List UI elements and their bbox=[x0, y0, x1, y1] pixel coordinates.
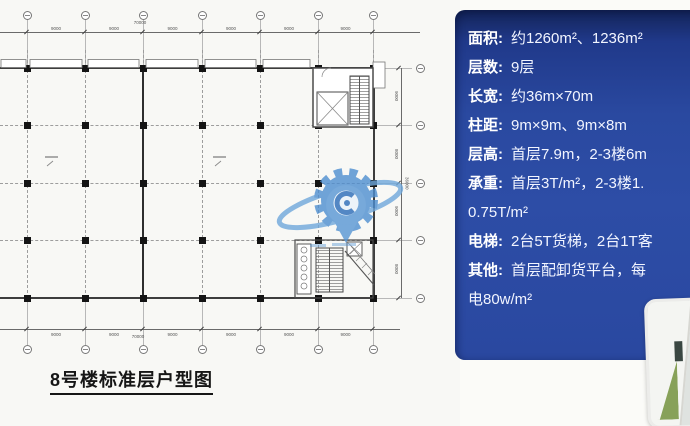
building-aerial-render-thumbnail bbox=[644, 297, 690, 426]
spec-value-continued: 0.75T/m² bbox=[468, 198, 690, 227]
render-window-slot bbox=[674, 341, 683, 361]
spec-row: 电梯:2台5T货梯，2台1T客 bbox=[468, 227, 690, 256]
spec-value: 9层 bbox=[511, 59, 534, 76]
plan-title: 8号楼标准层户型图 bbox=[50, 366, 213, 395]
spec-label: 电梯: bbox=[468, 233, 503, 250]
floor-plan: 9000900090009000900090009000900090009000… bbox=[0, 0, 460, 426]
spec-list: 面积:约1260m²、1236m²层数:9层长宽:约36m×70m柱距:9m×9… bbox=[455, 10, 690, 314]
spec-row: 柱距:9m×9m、9m×8m bbox=[468, 111, 690, 140]
core-top-right bbox=[313, 68, 373, 127]
screenshot-root: 9000900090009000900090009000900090009000… bbox=[0, 0, 690, 426]
spec-label: 柱距: bbox=[468, 117, 503, 134]
spec-label: 长宽: bbox=[468, 88, 503, 105]
plan-details-layer bbox=[0, 0, 460, 426]
spec-value: 首层3T/m²，2-3楼1. bbox=[511, 175, 644, 192]
spec-label: 层数: bbox=[468, 59, 503, 76]
spec-label: 承重: bbox=[468, 175, 503, 192]
spec-row: 层高:首层7.9m，2-3楼6m bbox=[468, 140, 690, 169]
watermark-gear-pin-logo-icon bbox=[275, 172, 404, 247]
core-bottom bbox=[295, 240, 375, 298]
room-label-marks bbox=[45, 157, 226, 166]
spec-value: 约36m×70m bbox=[511, 88, 593, 105]
spec-value: 9m×9m、9m×8m bbox=[511, 117, 627, 134]
spec-label: 层高: bbox=[468, 146, 503, 163]
spec-label: 其他: bbox=[468, 262, 503, 279]
spec-label: 面积: bbox=[468, 30, 503, 47]
spec-value: 首层配卸货平台，每 bbox=[511, 262, 646, 279]
spec-row: 面积:约1260m²、1236m² bbox=[468, 24, 690, 53]
spec-row: 其他:首层配卸货平台，每 bbox=[468, 256, 690, 285]
spec-value: 2台5T货梯，2台1T客 bbox=[511, 233, 653, 250]
spec-row: 层数:9层 bbox=[468, 53, 690, 82]
spec-row: 承重:首层3T/m²，2-3楼1. bbox=[468, 169, 690, 198]
spec-value: 约1260m²、1236m² bbox=[511, 30, 643, 47]
spec-row: 长宽:约36m×70m bbox=[468, 82, 690, 111]
spec-value: 首层7.9m，2-3楼6m bbox=[511, 146, 647, 163]
